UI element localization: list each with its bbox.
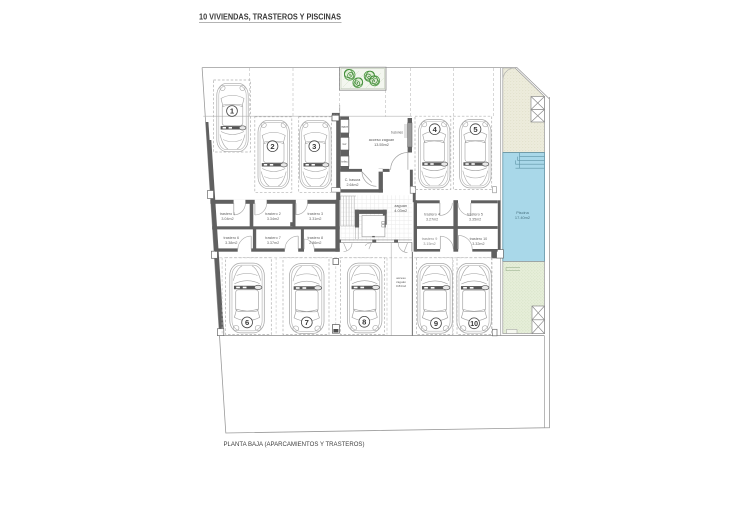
- svg-text:3.31m2: 3.31m2: [309, 217, 321, 221]
- svg-text:trastero 6: trastero 6: [224, 236, 240, 240]
- svg-text:9: 9: [434, 319, 438, 328]
- svg-text:acceso zaguan: acceso zaguan: [369, 138, 395, 142]
- svg-text:3.34m2: 3.34m2: [267, 217, 279, 221]
- svg-text:luz: luz: [343, 142, 347, 146]
- svg-text:3.04m2: 3.04m2: [221, 217, 233, 221]
- svg-text:trastero 8: trastero 8: [308, 236, 324, 240]
- svg-text:4.03m2: 4.03m2: [394, 208, 407, 213]
- svg-text:2: 2: [270, 142, 274, 151]
- svg-text:13.55m2: 13.55m2: [374, 143, 389, 147]
- svg-text:6: 6: [245, 318, 249, 327]
- svg-text:10 VIVIENDAS, TRASTEROS Y PISC: 10 VIVIENDAS, TRASTEROS Y PISCINAS: [199, 12, 341, 22]
- svg-text:3.27m2: 3.27m2: [426, 218, 438, 222]
- svg-text:2.64m2: 2.64m2: [347, 183, 359, 187]
- svg-text:17.40m2: 17.40m2: [515, 215, 530, 220]
- svg-text:8: 8: [362, 317, 366, 326]
- svg-text:trastero 3: trastero 3: [308, 212, 324, 216]
- svg-text:C. basura: C. basura: [345, 178, 361, 182]
- svg-text:3.15m2: 3.15m2: [423, 242, 435, 246]
- svg-text:trastero 1: trastero 1: [220, 212, 236, 216]
- svg-text:trastero 4: trastero 4: [424, 213, 440, 217]
- svg-text:3: 3: [312, 142, 316, 151]
- svg-text:trastero 10: trastero 10: [470, 237, 488, 241]
- svg-text:trastero 7: trastero 7: [265, 236, 281, 240]
- svg-text:trastero 2: trastero 2: [265, 212, 281, 216]
- svg-text:7: 7: [305, 318, 309, 327]
- svg-text:agua: agua: [341, 125, 348, 129]
- svg-text:0.84m2: 0.84m2: [396, 284, 406, 288]
- svg-text:2.86m2: 2.86m2: [309, 241, 321, 245]
- svg-text:3.32m2: 3.32m2: [472, 242, 484, 246]
- svg-text:buzones: buzones: [391, 131, 403, 135]
- svg-text:3.38m2: 3.38m2: [225, 241, 237, 245]
- svg-text:3.35m2: 3.35m2: [469, 218, 481, 222]
- svg-text:telec: telec: [341, 160, 348, 164]
- svg-text:trastero 9: trastero 9: [422, 237, 438, 241]
- svg-text:10: 10: [470, 321, 478, 328]
- svg-text:PLANTA BAJA (APARCAMIENTOS Y T: PLANTA BAJA (APARCAMIENTOS Y TRASTEROS): [224, 441, 365, 448]
- svg-text:3.37m2: 3.37m2: [267, 241, 279, 245]
- svg-text:trastero 5: trastero 5: [467, 213, 483, 217]
